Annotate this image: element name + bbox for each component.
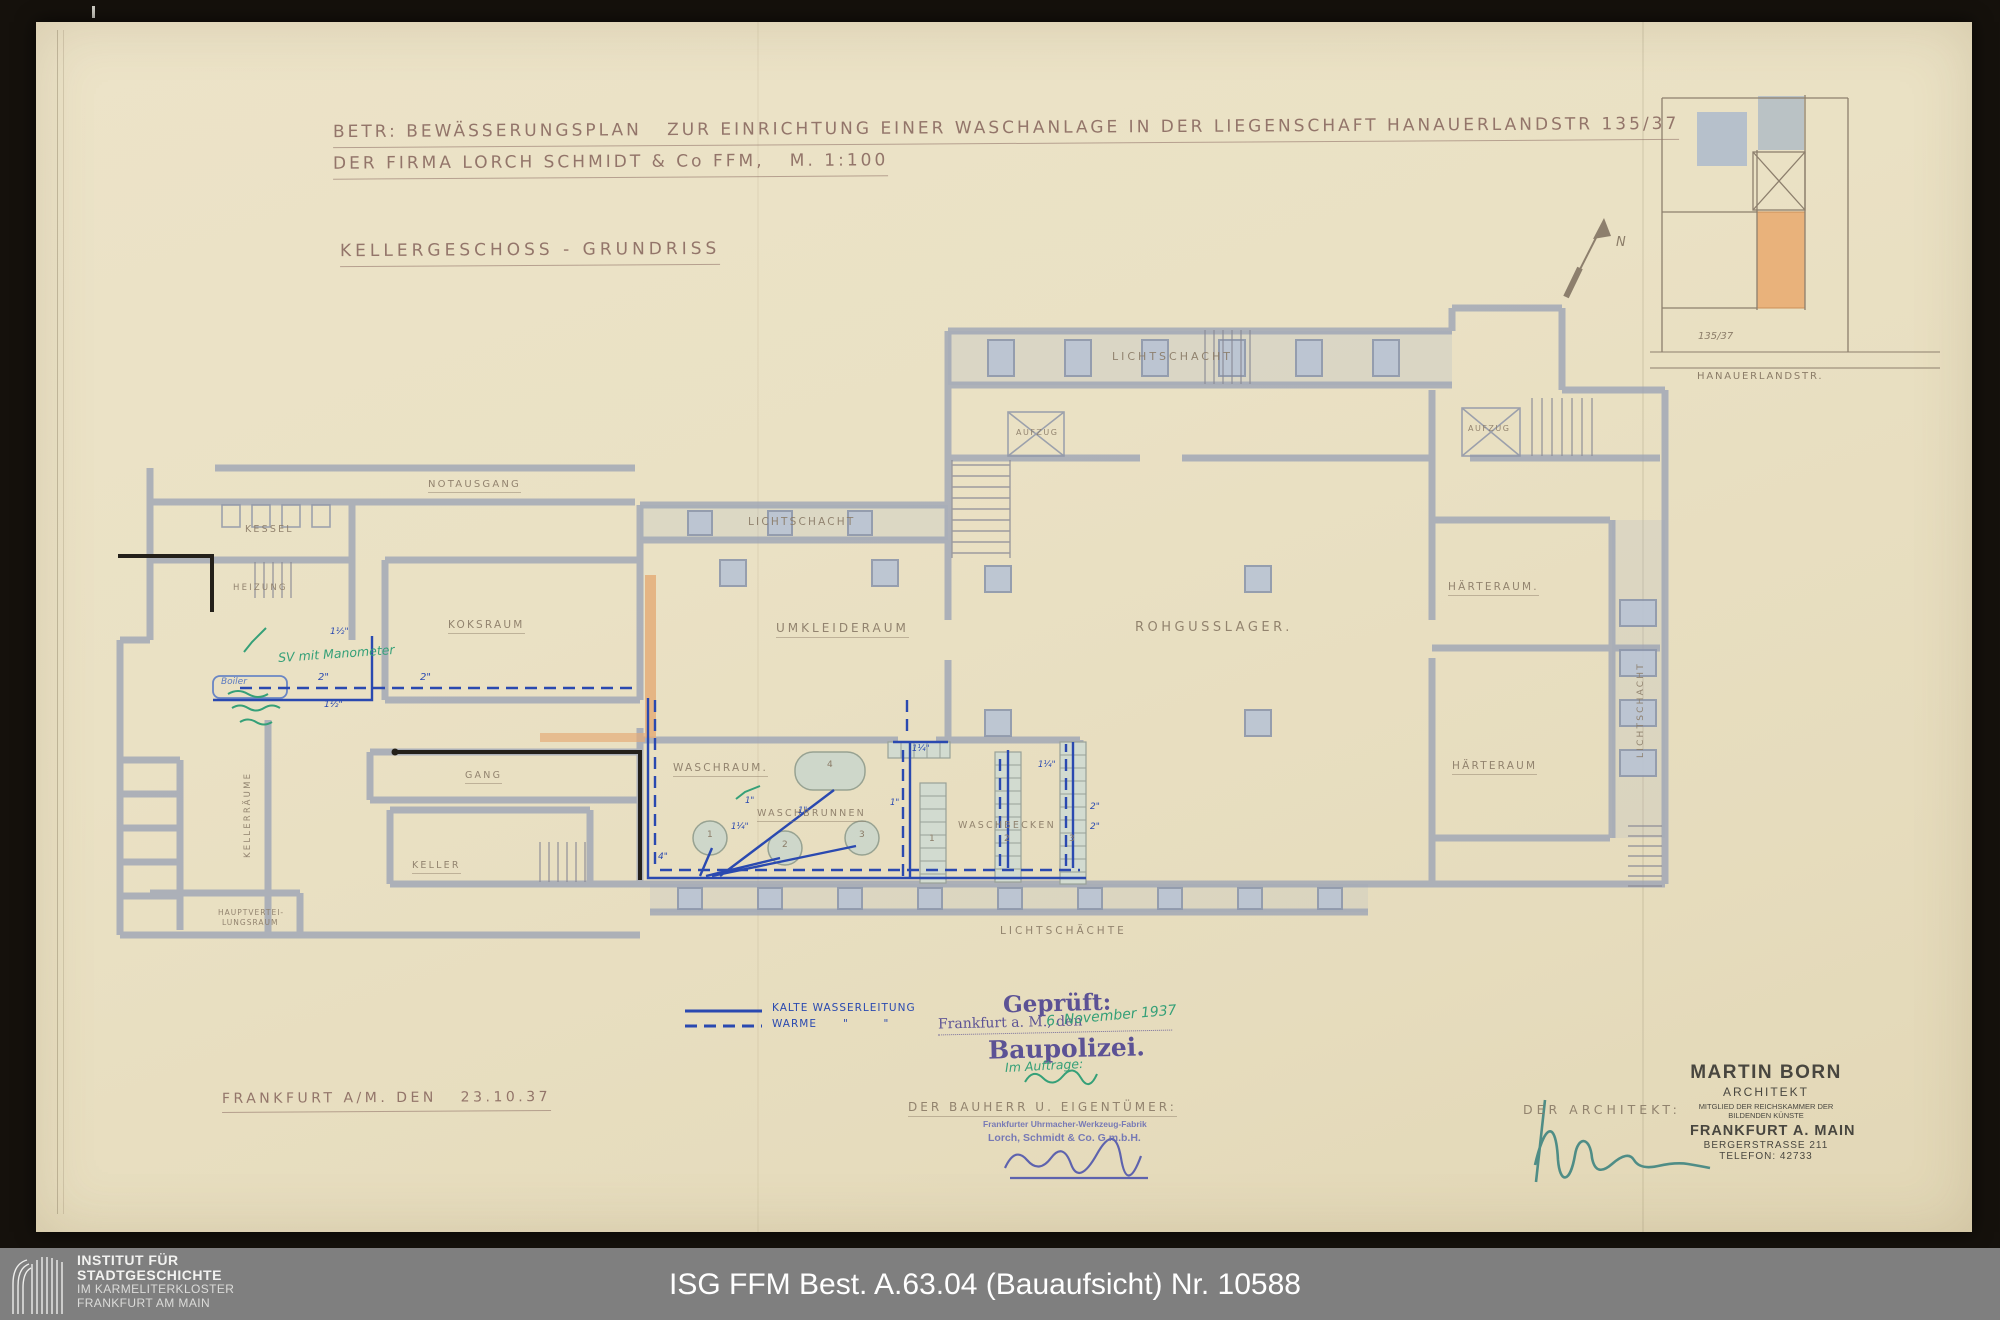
brunnen-number-2: 2 xyxy=(782,840,788,850)
pipe-size: 1¼" xyxy=(1038,760,1056,770)
room-label-haerteraum-unten: HÄRTERAUM xyxy=(1452,760,1537,775)
pipe-size: 1¼" xyxy=(912,744,930,754)
pipe-size: 1" xyxy=(890,798,899,808)
inset-street-name: HANAUERLANDSTR. xyxy=(1697,371,1823,382)
room-label-haerteraum-oben: HÄRTERAUM. xyxy=(1448,581,1539,596)
becken-number-1: 1 xyxy=(929,834,935,844)
pipe-size: 1" xyxy=(745,796,754,806)
drawing-title: KELLERGESCHOSS - GRUNDRISS xyxy=(340,239,720,267)
pipe-size: 1½" xyxy=(324,700,343,710)
room-label-waschbrunnen: WASCHBRUNNEN xyxy=(757,808,866,822)
room-label-keller: KELLER xyxy=(412,860,461,874)
brunnen-number-1: 1 xyxy=(707,830,713,840)
room-label-heizung: HEIZUNG xyxy=(233,583,288,593)
architect-stamp-city: FRANKFURT A. MAIN xyxy=(1690,1123,1842,1139)
pipe-size: 1" xyxy=(798,806,807,816)
site-plan-inset xyxy=(1650,95,1940,368)
institute-sub-line2: FRANKFURT AM MAIN xyxy=(77,1297,234,1311)
architect-stamp-name: MARTIN BORN xyxy=(1690,1062,1842,1084)
room-label-notausgang: NOTAUSGANG xyxy=(428,479,521,493)
architekt-heading: DER ARCHITEKT: xyxy=(1523,1102,1681,1117)
room-label-gang: GANG xyxy=(465,770,502,784)
black-supply-line xyxy=(118,556,640,880)
institute-text-block: INSTITUT FÜR STADTGESCHICHTE IM KARMELIT… xyxy=(77,1253,234,1310)
pipe-size: 2" xyxy=(1090,802,1100,812)
boiler-label: Boiler xyxy=(221,677,247,687)
brunnen-number-4: 4 xyxy=(827,760,833,770)
becken-number-2: 2 xyxy=(1004,834,1010,844)
room-label-lichtschacht-mitte: LICHTSCHACHT xyxy=(748,516,856,528)
architect-stamp-member2: BILDENDEN KÜNSTE xyxy=(1690,1111,1842,1120)
becken-number-3: 3 xyxy=(1069,834,1075,844)
legend-cold-label: KALTE WASSERLEITUNG xyxy=(772,1002,916,1014)
archive-footer: INSTITUT FÜR STADTGESCHICHTE IM KARMELIT… xyxy=(0,1248,2000,1320)
room-label-waschbecken: WASCHBECKEN xyxy=(958,820,1056,831)
firm-stamp-line1: Frankfurter Uhrmacher-Werkzeug-Fabrik xyxy=(983,1119,1147,1129)
pipe-size: 2" xyxy=(420,672,431,683)
room-label-aufzug-links: AUFZUG xyxy=(1016,428,1058,437)
room-label-kellerraeume: KELLERRÄUME xyxy=(243,772,253,858)
isg-logo-icon xyxy=(10,1254,64,1314)
room-label-koksraum: KOKSRAUM xyxy=(448,619,525,634)
place-date: FRANKFURT A/M. DEN 23.10.37 xyxy=(222,1089,551,1113)
institute-name-line2: STADTGESCHICHTE xyxy=(77,1268,234,1283)
legend-warm-label: WARME " " xyxy=(772,1018,889,1030)
room-label-hauptverteilung-2: LUNGSRAUM xyxy=(222,918,278,927)
architect-stamp-phone: TELEFON: 42733 xyxy=(1690,1151,1842,1162)
pipe-size: 1½" xyxy=(330,627,349,637)
room-label-lichtschacht-oben: LICHTSCHACHT xyxy=(1112,350,1233,363)
room-label-waschraum: WASCHRAUM. xyxy=(673,762,768,777)
institute-name-line1: INSTITUT FÜR xyxy=(77,1253,234,1268)
pipe-size: 1¼" xyxy=(731,822,749,832)
pipe-size: 4" xyxy=(658,852,668,862)
subject-line-2: DER FIRMA LORCH SCHMIDT & Co FFM, M. 1:1… xyxy=(333,150,888,179)
archive-reference: ISG FFM Best. A.63.04 (Bauaufsicht) Nr. … xyxy=(669,1268,1301,1302)
room-label-rohgusslager: ROHGUSSLAGER. xyxy=(1135,620,1293,635)
architect-stamp-street: BERGERSTRASSE 211 xyxy=(1690,1140,1842,1151)
architect-stamp-role: ARCHITEKT xyxy=(1690,1085,1842,1099)
firm-stamp-line2: Lorch, Schmidt & Co. G.m.b.H. xyxy=(988,1132,1141,1144)
pipe-size: 2" xyxy=(1090,822,1100,832)
north-letter: N xyxy=(1616,235,1626,250)
inset-parcel-number: 135/37 xyxy=(1698,331,1733,342)
room-label-lichtschacht-rechts: LICHTSCHACHT xyxy=(1636,662,1646,758)
room-label-lichtschaechte: LICHTSCHÄCHTE xyxy=(1000,925,1127,937)
room-label-aufzug-rechts: AUFZUG xyxy=(1468,424,1510,433)
institute-sub-line1: IM KARMELITERKLOSTER xyxy=(77,1283,234,1297)
brunnen-number-3: 3 xyxy=(859,830,865,840)
architect-stamp: MARTIN BORN ARCHITEKT MITGLIED DER REICH… xyxy=(1690,1062,1842,1162)
room-label-hauptverteilung-1: HAUPTVERTEI- xyxy=(218,908,284,917)
architect-stamp-member1: MITGLIED DER REICHSKAMMER DER xyxy=(1690,1102,1842,1111)
room-label-umkleideraum: UMKLEIDERAUM xyxy=(776,621,909,638)
room-label-kessel: KESSEL xyxy=(245,524,294,535)
scan-viewer: BETR: BEWÄSSERUNGSPLAN ZUR EINRICHTUNG E… xyxy=(0,0,2000,1320)
bauherr-heading: DER BAUHERR U. EIGENTÜMER: xyxy=(908,1100,1177,1117)
pipe-size: 2" xyxy=(318,672,329,683)
north-arrow xyxy=(1566,218,1611,297)
